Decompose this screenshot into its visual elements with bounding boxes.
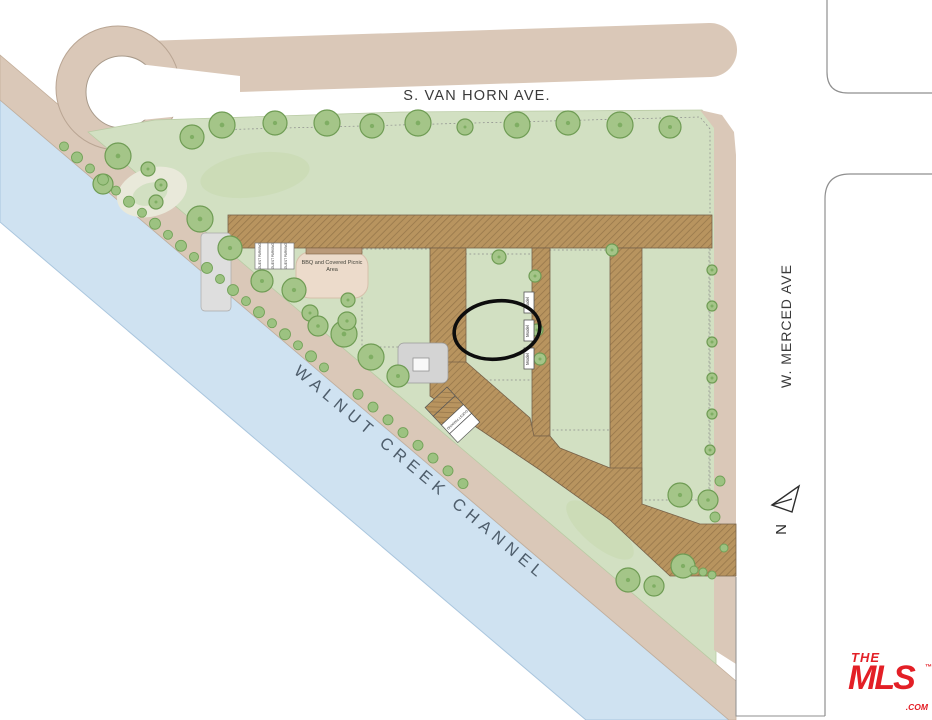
logo-mls: MLS bbox=[848, 665, 928, 693]
mls-logo: THE MLS .COM ™ bbox=[848, 650, 928, 712]
street-label-merced: W. MERCED AVE bbox=[778, 246, 794, 406]
logo-tm: ™ bbox=[925, 664, 932, 671]
site-plan-map: GUEST PARKING GUEST PARKING GUEST PARKIN… bbox=[0, 0, 932, 720]
logo-com: .COM bbox=[906, 702, 928, 712]
bbq-label: BBQ and Covered Picnic Area bbox=[299, 260, 365, 274]
street-label-van-horn: S. VAN HORN AVE. bbox=[377, 88, 577, 104]
